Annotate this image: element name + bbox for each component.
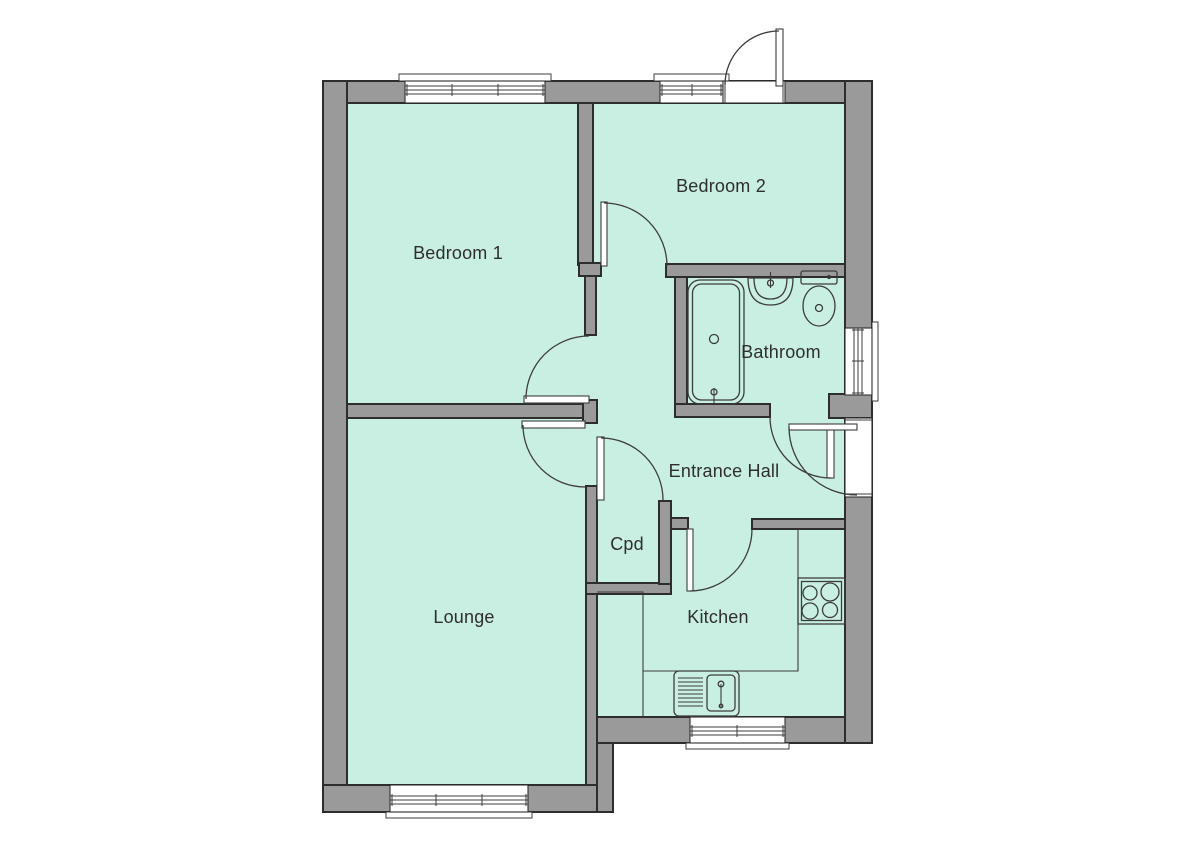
door-leaf bbox=[776, 29, 783, 86]
door-leaf bbox=[522, 421, 585, 428]
window-bedroom2 bbox=[654, 74, 729, 103]
window-glazing bbox=[660, 84, 723, 96]
window-opening bbox=[390, 785, 528, 812]
label-bedroom2: Bedroom 2 bbox=[676, 176, 766, 196]
window-sill bbox=[399, 74, 551, 81]
door-leaf bbox=[601, 202, 607, 266]
wall-bathroom-se-post bbox=[829, 394, 872, 418]
door-leaf bbox=[827, 427, 834, 478]
door-leaf bbox=[524, 396, 589, 403]
window-sill bbox=[686, 743, 789, 749]
window-opening bbox=[405, 81, 545, 103]
window-lounge bbox=[386, 785, 532, 818]
window-glazing bbox=[852, 328, 864, 395]
door-leaf bbox=[789, 424, 857, 430]
floorplan-canvas: Bedroom 1 Bedroom 2 Bathroom Entrance Ha… bbox=[0, 0, 1200, 848]
label-lounge: Lounge bbox=[433, 607, 494, 627]
window-glazing bbox=[390, 794, 528, 806]
window-sill bbox=[654, 74, 729, 81]
label-entrance-hall: Entrance Hall bbox=[669, 461, 780, 481]
wall-bathroom-west bbox=[675, 277, 687, 406]
wall-cpd-east-stub bbox=[671, 518, 688, 529]
wall-bedroom-divider-cap bbox=[579, 263, 601, 276]
wall-hall-west-stub bbox=[585, 276, 596, 335]
window-bedroom1 bbox=[399, 74, 551, 103]
floorplan-page: Bedroom 1 Bedroom 2 Bathroom Entrance Ha… bbox=[0, 0, 1200, 848]
window-sill bbox=[872, 322, 878, 401]
window-kitchen bbox=[686, 717, 789, 749]
wall-lounge-east bbox=[586, 486, 597, 785]
label-bedroom1: Bedroom 1 bbox=[413, 243, 503, 263]
door-swing-arc bbox=[725, 31, 779, 85]
front-door bbox=[725, 29, 783, 86]
door-leaf bbox=[687, 529, 693, 591]
label-bathroom: Bathroom bbox=[741, 342, 821, 362]
window-glazing bbox=[690, 725, 785, 737]
window-bathroom bbox=[845, 322, 878, 401]
window-glazing bbox=[405, 84, 545, 96]
wall-bedroom-divider bbox=[578, 103, 593, 265]
window-sill bbox=[386, 812, 532, 818]
wall-step bbox=[597, 743, 613, 812]
wall-left bbox=[323, 81, 347, 812]
wall-bathroom-south bbox=[675, 404, 770, 417]
wall-cpd-east bbox=[659, 501, 671, 584]
wall-lounge-north bbox=[347, 404, 589, 418]
wall-kitchen-north bbox=[752, 519, 845, 529]
door-leaf bbox=[597, 437, 604, 500]
label-cupboard: Cpd bbox=[610, 534, 644, 554]
label-kitchen: Kitchen bbox=[687, 607, 748, 627]
